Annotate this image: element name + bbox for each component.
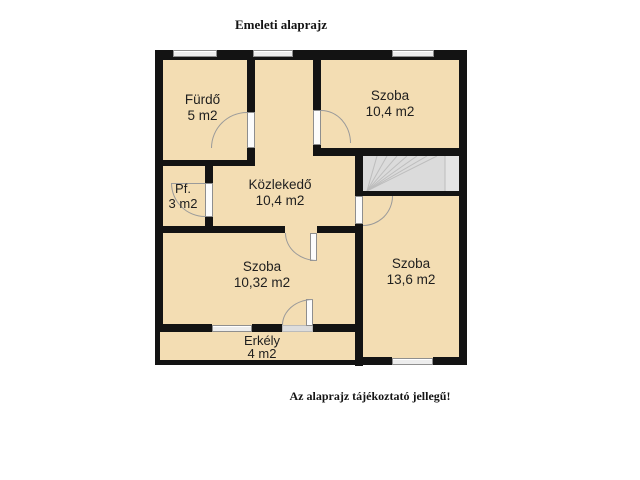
window-symbol-furdo — [173, 50, 217, 57]
room-label-kozlekedo: Közlekedő 10,4 m2 — [215, 177, 345, 209]
room-area: 5 m2 — [160, 108, 245, 124]
room-name: Fürdő — [160, 92, 245, 108]
room-area: 3 m2 — [152, 196, 214, 211]
floor-plan-page: Emeleti alaprajz — [0, 0, 640, 480]
window-symbol-szoba-right — [392, 358, 433, 365]
wall-szoba-top-bottom — [313, 148, 459, 156]
balcony-door-threshold — [282, 325, 313, 332]
stairs-symbol — [363, 156, 459, 191]
door-leaf-szoba-top — [313, 110, 321, 145]
window-symbol-szoba-top — [392, 50, 434, 57]
page-title: Emeleti alaprajz — [181, 17, 381, 33]
room-area: 13,6 m2 — [351, 272, 471, 288]
window-symbol-hall — [253, 50, 293, 57]
wall-bottom-a — [155, 324, 212, 332]
room-name: Szoba — [197, 259, 327, 275]
room-label-szoba-left: Szoba 10,32 m2 — [197, 259, 327, 291]
window-symbol-szoba-left — [212, 325, 252, 332]
door-leaf-furdo — [247, 112, 255, 148]
wall-szoba-right-bottom-b — [433, 357, 467, 365]
wall-furdo-right-upper — [247, 60, 255, 112]
room-area: 10,4 m2 — [215, 193, 345, 209]
disclaimer-text: Az alaprajz tájékoztató jellegű! — [270, 389, 470, 404]
room-area: 10,32 m2 — [197, 275, 327, 291]
room-area: 4 m2 — [197, 347, 327, 360]
wall-szoba-top-left-upper — [313, 60, 321, 110]
room-label-furdo: Fürdő 5 m2 — [160, 92, 245, 124]
wall-center-vertical-lower — [355, 224, 363, 366]
wall-balcony-left — [155, 332, 160, 363]
wall-bottom-c — [313, 324, 363, 332]
room-label-erkely: Erkély 4 m2 — [197, 334, 327, 360]
room-name: Szoba — [330, 88, 450, 104]
stairs-steps-icon — [363, 156, 459, 191]
room-area: 10,4 m2 — [330, 104, 450, 120]
wall-bottom-b — [252, 324, 282, 332]
room-name: Szoba — [351, 256, 471, 272]
room-label-szoba-top: Szoba 10,4 m2 — [330, 88, 450, 120]
room-name: Közlekedő — [215, 177, 345, 193]
wall-center-vertical-upper — [355, 150, 363, 196]
room-name: Pf. — [152, 181, 214, 196]
door-leaf-szoba-right — [355, 196, 363, 224]
wall-right — [459, 50, 467, 365]
room-label-szoba-right: Szoba 13,6 m2 — [351, 256, 471, 288]
room-label-pf: Pf. 3 m2 — [152, 181, 214, 211]
szoba-right-extension — [363, 324, 463, 361]
wall-hall-bottom-left — [155, 226, 285, 233]
